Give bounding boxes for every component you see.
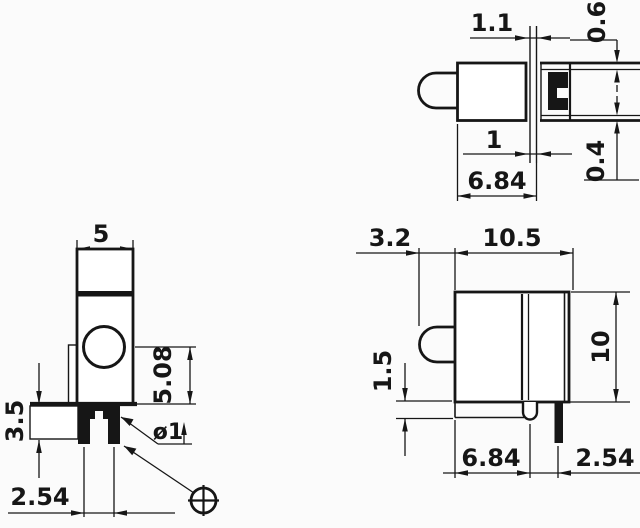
dim-label-body-height: 10: [587, 330, 615, 363]
led-dome-side: [420, 327, 456, 362]
dim-label-panel-gap: 1.1: [471, 9, 514, 37]
pin-right-front: [108, 406, 120, 444]
dim-led-center-height: 5.08: [135, 345, 196, 404]
dim-lens-protrusion: 3.2: [356, 224, 455, 326]
pin-side: [555, 402, 564, 443]
crosshair-circle-icon: [188, 485, 219, 516]
dim-label-lens-protrusion: 3.2: [369, 224, 412, 252]
locating-tab-side: [523, 402, 537, 420]
base-front: [30, 406, 78, 439]
side-view: 3.2 10.5: [356, 224, 640, 478]
dim-label-pitch-side: 2.54: [575, 444, 634, 472]
dim-label-body-depth-top: 6.84: [467, 167, 526, 195]
led-dome-top: [419, 73, 458, 108]
holder-body-side: [455, 292, 569, 402]
index-mark: [124, 446, 219, 516]
led-holder-drawing: 1.1 1: [0, 0, 640, 528]
dim-pin-width: 1: [463, 126, 572, 157]
dim-label-standoff: 3.5: [1, 400, 29, 443]
dim-label-pitch-front: 2.54: [10, 483, 69, 511]
front-view: 5 5.08 3.5: [1, 220, 219, 517]
center-tab-front: [90, 406, 108, 419]
body-step-edge: [76, 291, 134, 297]
dim-tab-height: 1.5: [369, 350, 453, 456]
dim-label-body-depth-side: 10.5: [482, 224, 541, 252]
dim-pin-setback: 6.84 2.54: [443, 420, 640, 478]
dim-label-pin-width: 1: [486, 126, 503, 154]
rear-bracket-top: [540, 63, 640, 121]
dim-label-edge-top: 0.6: [583, 1, 611, 44]
dim-pin-pitch-front: 2.54: [8, 447, 175, 517]
base-side: [455, 402, 524, 418]
dim-body-height: 10: [567, 292, 630, 402]
top-view: 1.1 1: [419, 1, 640, 201]
dim-label-led-center: 5.08: [149, 345, 177, 404]
dim-label-pin-setback: 6.84: [461, 444, 520, 472]
technical-drawing-page: 1.1 1: [0, 0, 640, 528]
led-lens-front: [84, 327, 125, 368]
holder-body-top: [458, 63, 527, 121]
dim-label-tab-height: 1.5: [369, 350, 397, 393]
dim-body-depth-side: 10.5: [455, 224, 573, 290]
retention-clip-top: [548, 72, 568, 110]
panel-slot-lines: [530, 26, 537, 163]
dim-pin-diameter: ø1: [121, 417, 192, 445]
dim-edge-offsets: 0.6 0.4: [570, 1, 639, 183]
dim-label-body-width: 5: [93, 220, 110, 248]
dim-label-edge-bottom: 0.4: [582, 140, 610, 183]
dim-panel-gap: 1.1: [470, 9, 570, 41]
pin-left-front: [78, 406, 90, 444]
dim-body-width: 5: [77, 220, 133, 252]
dim-label-pin-diameter: ø1: [153, 420, 183, 445]
